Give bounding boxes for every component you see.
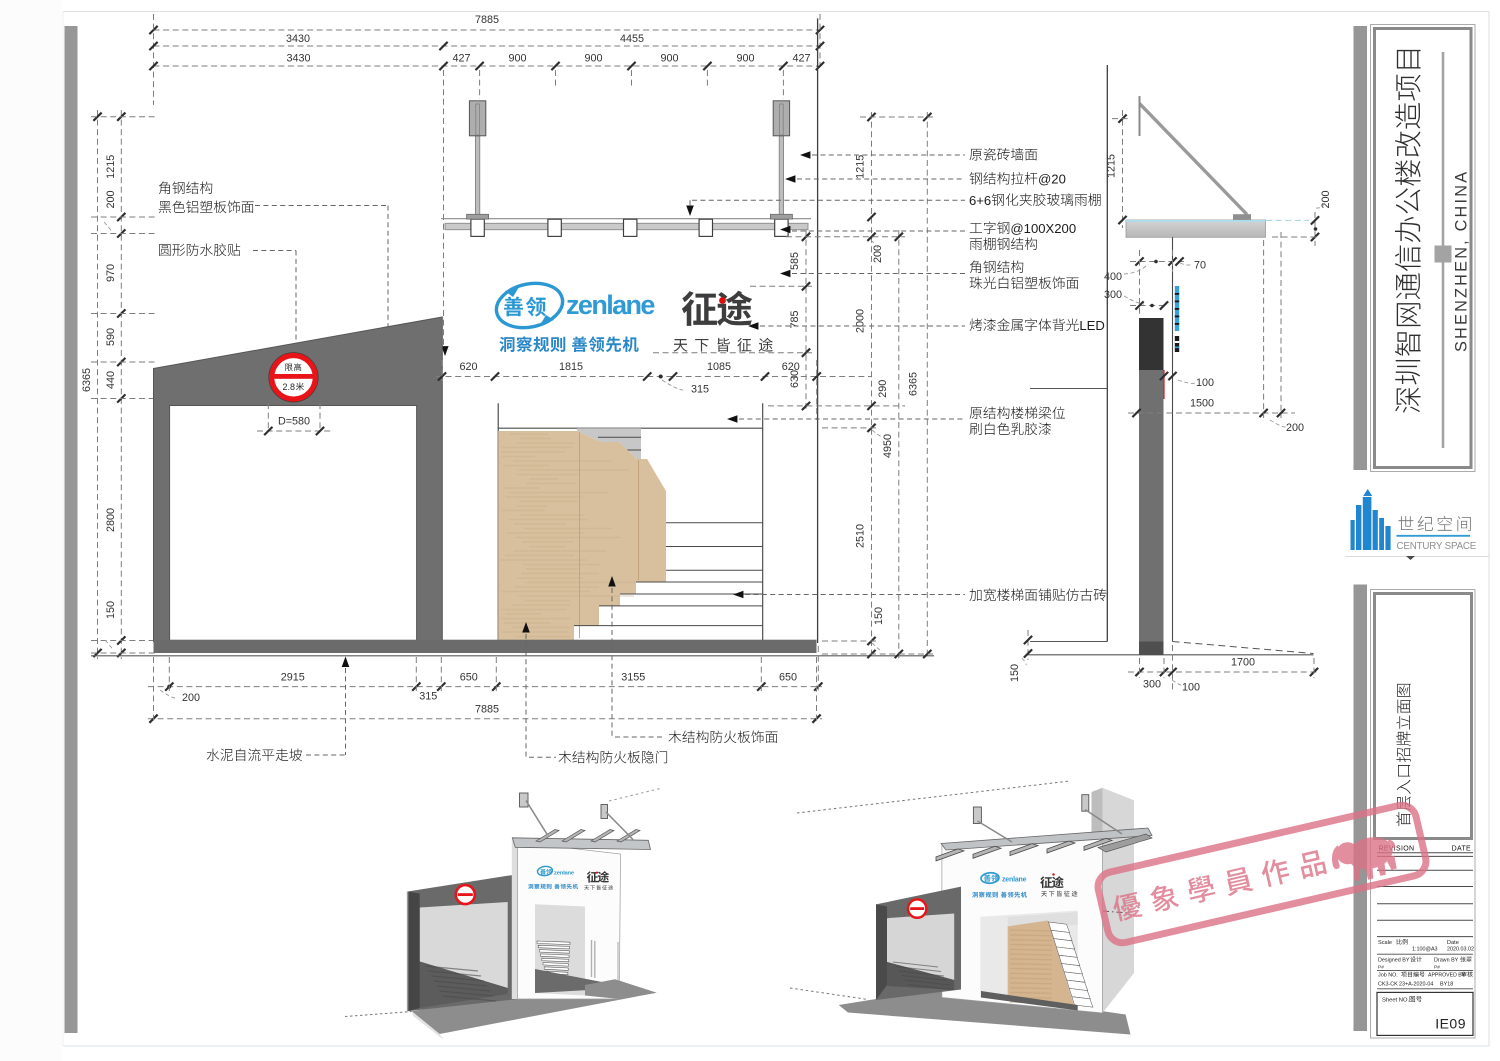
svg-text:650: 650: [779, 672, 797, 684]
svg-text:zenlane: zenlane: [566, 290, 655, 320]
svg-text:6+6: 6+6: [969, 193, 991, 208]
svg-text:590: 590: [105, 328, 117, 346]
svg-text:6365: 6365: [908, 372, 920, 396]
svg-text:BY18: BY18: [1440, 982, 1453, 988]
svg-text:7885: 7885: [475, 14, 499, 26]
svg-text:100: 100: [1196, 377, 1214, 389]
svg-text:1:100@A3: 1:100@A3: [1412, 947, 1438, 953]
svg-text:1700: 1700: [1231, 657, 1255, 669]
svg-text:7885: 7885: [475, 704, 499, 716]
svg-text:3155: 3155: [621, 672, 645, 684]
svg-text:3430: 3430: [286, 33, 310, 45]
svg-text:2.8: 2.8: [283, 382, 296, 392]
svg-text:Date: Date: [1447, 940, 1459, 946]
svg-text:Sheet NO.: Sheet NO.: [1382, 998, 1409, 1004]
svg-text:1215: 1215: [855, 155, 867, 179]
svg-text:2800: 2800: [105, 508, 117, 532]
svg-text:300: 300: [1143, 679, 1161, 691]
svg-text:DATE: DATE: [1452, 846, 1471, 853]
svg-text:150: 150: [1009, 664, 1021, 682]
svg-text:900: 900: [508, 53, 526, 65]
svg-text:900: 900: [584, 53, 602, 65]
svg-text:Drawn BY: Drawn BY: [1434, 958, 1459, 964]
svg-text:1500: 1500: [1190, 398, 1214, 410]
svg-text:4455: 4455: [620, 33, 644, 45]
svg-text:200: 200: [1286, 422, 1304, 434]
svg-text:620: 620: [459, 361, 477, 373]
svg-text:Designed BY: Designed BY: [1378, 958, 1410, 964]
svg-text:23+A-2020-04: 23+A-2020-04: [1399, 982, 1433, 988]
svg-text:100: 100: [1182, 682, 1200, 694]
svg-text:290: 290: [877, 380, 889, 398]
svg-text:IE09: IE09: [1435, 1016, 1466, 1032]
svg-text:CENTURY SPACE: CENTURY SPACE: [1397, 541, 1477, 552]
svg-text:1815: 1815: [559, 361, 583, 373]
svg-text:2020.03.02: 2020.03.02: [1447, 947, 1474, 953]
svg-text:zenlane: zenlane: [1002, 877, 1027, 884]
svg-text:2510: 2510: [855, 524, 867, 548]
svg-text:@100X200: @100X200: [1010, 221, 1076, 236]
svg-text:427: 427: [452, 53, 470, 65]
svg-text:LED: LED: [1079, 318, 1104, 333]
svg-text:970: 970: [105, 264, 117, 282]
svg-text:200: 200: [182, 692, 200, 704]
svg-text:D=580: D=580: [278, 416, 310, 428]
svg-text:150: 150: [105, 601, 117, 619]
svg-text:zenlane: zenlane: [554, 871, 575, 877]
svg-text:300: 300: [1104, 289, 1122, 301]
svg-text:650: 650: [460, 672, 478, 684]
svg-text:440: 440: [105, 371, 117, 389]
svg-text:6365: 6365: [81, 368, 93, 392]
svg-text:Scale: Scale: [1378, 940, 1392, 946]
svg-text:2915: 2915: [281, 672, 305, 684]
svg-text:3430: 3430: [286, 53, 310, 65]
svg-text:427: 427: [792, 53, 810, 65]
svg-text:2000: 2000: [855, 309, 867, 333]
svg-text:585: 585: [789, 252, 801, 270]
svg-text:1085: 1085: [707, 361, 731, 373]
svg-text:400: 400: [1104, 271, 1122, 283]
svg-text:@20: @20: [1038, 172, 1066, 187]
svg-text:CK3-CK: CK3-CK: [1378, 982, 1398, 988]
svg-text:1215: 1215: [105, 155, 117, 179]
svg-text:315: 315: [691, 384, 709, 396]
svg-text:P#: P#: [1434, 965, 1440, 971]
svg-text:200: 200: [105, 190, 117, 208]
svg-text:900: 900: [736, 53, 754, 65]
svg-text:150: 150: [873, 607, 885, 625]
svg-text:315: 315: [419, 691, 437, 703]
svg-text:P#: P#: [1378, 965, 1384, 971]
svg-text:Job NO.: Job NO.: [1378, 973, 1398, 979]
svg-text:APPROVED BY: APPROVED BY: [1428, 973, 1466, 979]
svg-text:1215: 1215: [1106, 154, 1118, 178]
svg-text:70: 70: [1194, 260, 1206, 272]
svg-text:900: 900: [660, 53, 678, 65]
svg-text:4950: 4950: [882, 434, 894, 458]
svg-text:200: 200: [1320, 190, 1332, 208]
svg-text:SHENZHEN, CHINA: SHENZHEN, CHINA: [1453, 170, 1471, 352]
svg-text:630: 630: [789, 370, 801, 388]
